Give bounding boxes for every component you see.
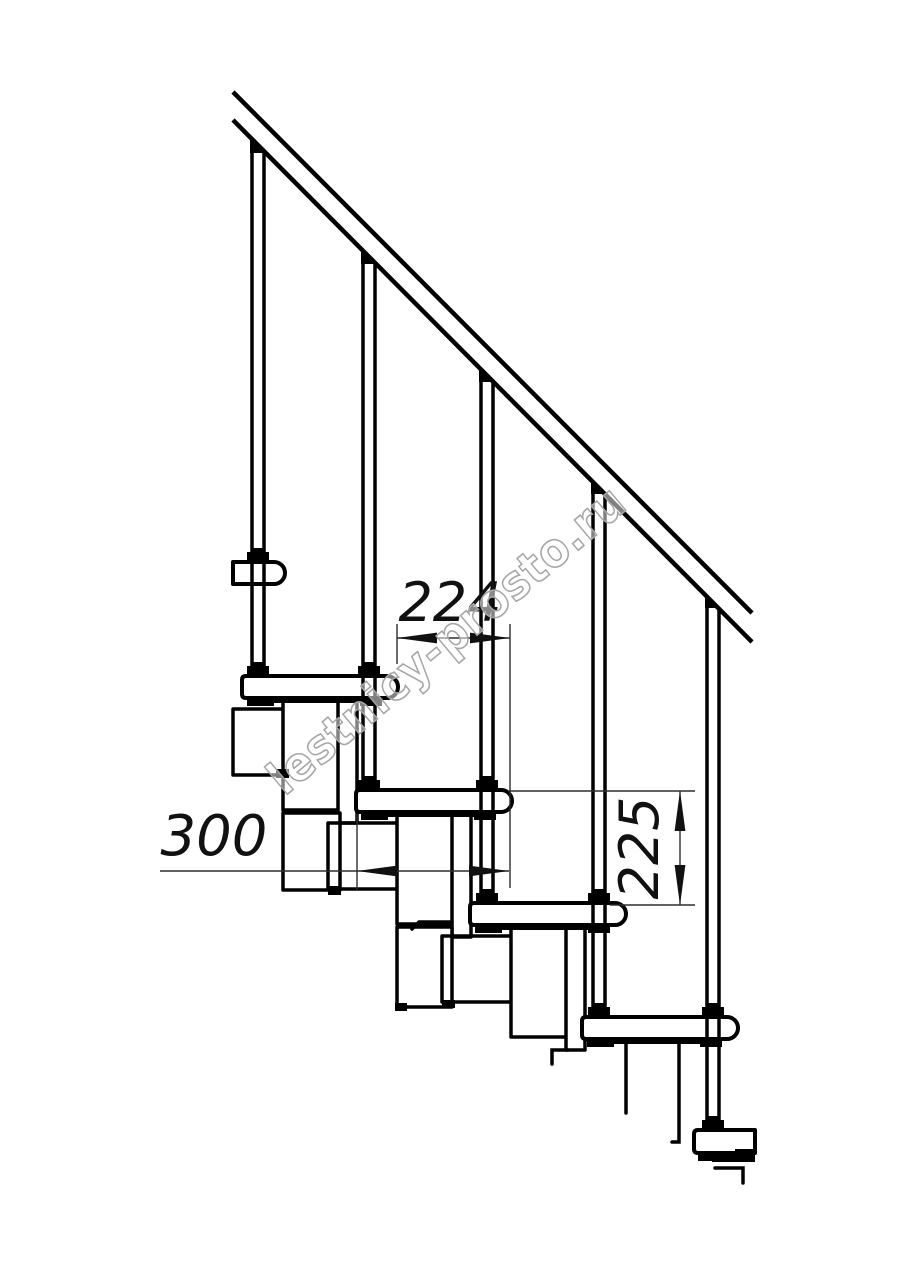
- staircase-technical-drawing: 224 300 225 lestnicy-prosto.ru: [0, 0, 914, 1280]
- arrow-up: [675, 791, 686, 831]
- step-6: [694, 1130, 755, 1183]
- connector-bit: [442, 1000, 455, 1008]
- step-1: [233, 562, 285, 584]
- column-box-step4: [511, 927, 568, 1037]
- baluster-5: [707, 606, 719, 1130]
- arrow-left: [357, 866, 397, 877]
- step-4: [470, 903, 626, 933]
- dim-tread-label: 300: [161, 804, 268, 869]
- baluster-1: [252, 149, 264, 676]
- break-line-step6: [715, 1168, 743, 1183]
- module-corner-step5: [552, 1050, 568, 1064]
- column-line-step5-right: [672, 1041, 679, 1142]
- dim-riser-label: 225: [608, 796, 671, 899]
- baluster-4: [593, 492, 605, 1017]
- dimension-riser: 225: [509, 791, 695, 905]
- step-5: [582, 1017, 738, 1047]
- step-3: [356, 790, 512, 820]
- page: 224 300 225 lestnicy-prosto.ru: [0, 0, 914, 1280]
- connector-bit: [328, 886, 341, 895]
- arrow-right: [469, 866, 509, 877]
- arrow-down: [675, 865, 686, 905]
- watermark-text: lestnicy-prosto.ru: [257, 474, 637, 805]
- column-box-step3: [397, 814, 454, 924]
- connector-bit: [395, 1003, 407, 1011]
